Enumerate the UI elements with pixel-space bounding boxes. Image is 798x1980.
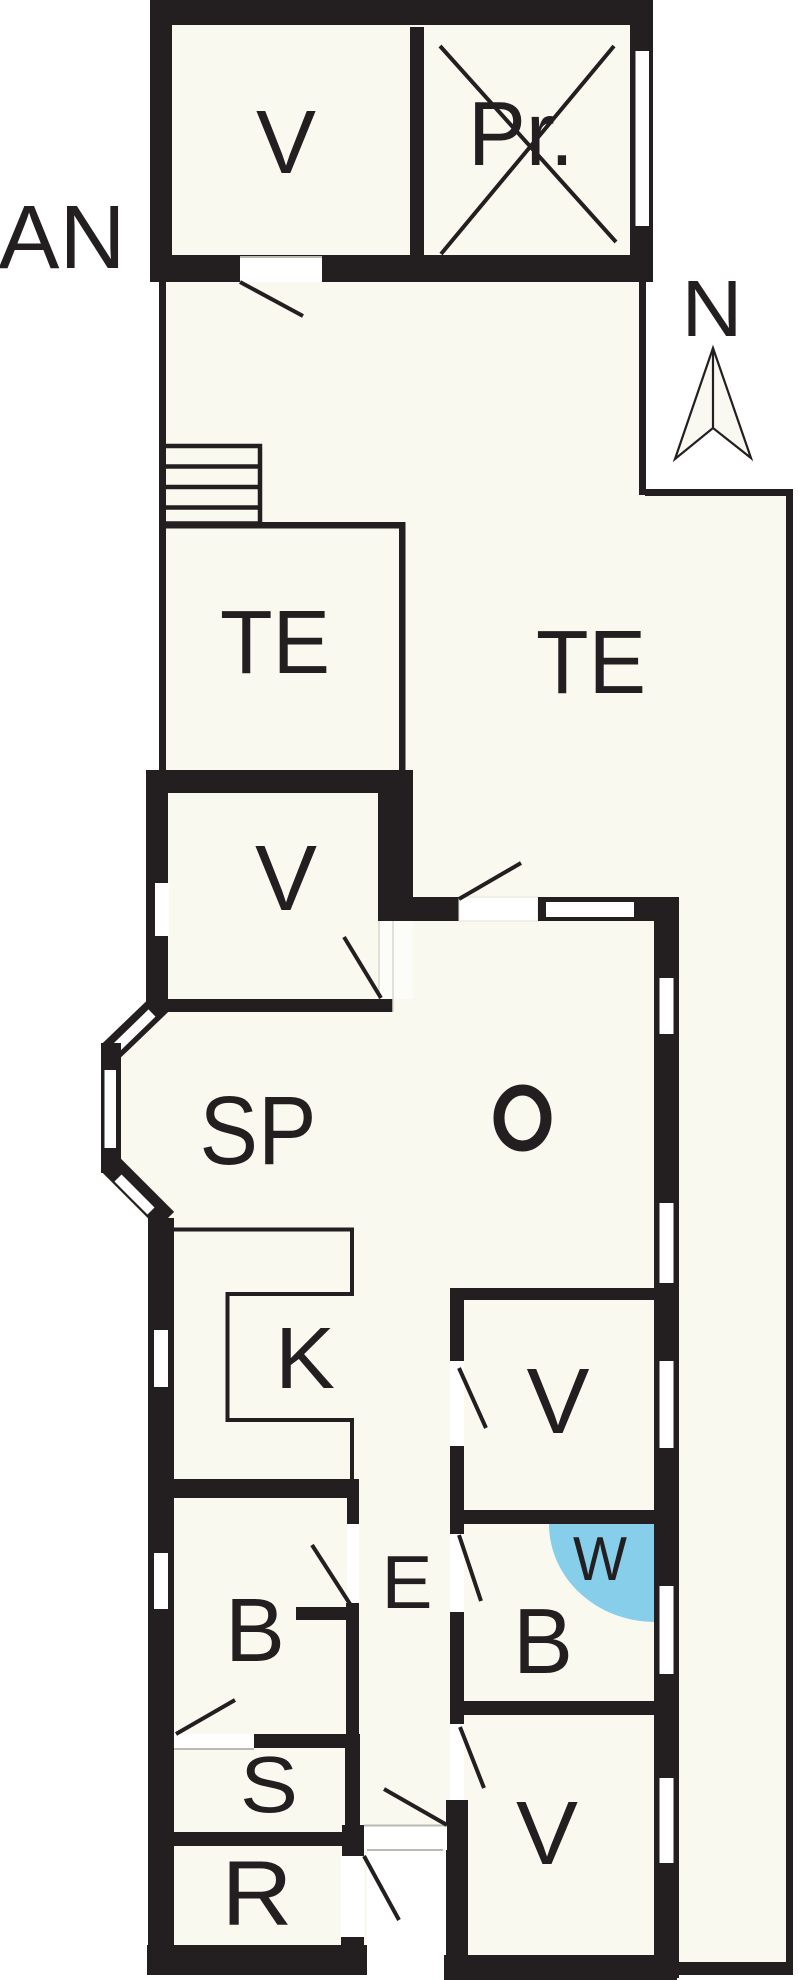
svg-text:B: B: [225, 1581, 285, 1681]
svg-text:W: W: [573, 1525, 627, 1594]
svg-text:K: K: [275, 1310, 335, 1407]
svg-text:R: R: [222, 1843, 293, 1945]
svg-text:V: V: [255, 826, 317, 930]
svg-text:Pr.: Pr.: [468, 84, 574, 185]
svg-text:AN: AN: [0, 188, 126, 288]
svg-text:SP: SP: [200, 1076, 317, 1185]
svg-text:E: E: [382, 1540, 433, 1624]
svg-text:TE: TE: [536, 613, 646, 713]
svg-text:N: N: [682, 264, 743, 353]
svg-text:B: B: [513, 1589, 573, 1693]
svg-text:S: S: [240, 1740, 298, 1829]
svg-text:V: V: [527, 1349, 590, 1453]
svg-text:V: V: [516, 1784, 578, 1884]
svg-text:TE: TE: [220, 593, 330, 693]
svg-text:V: V: [256, 93, 316, 193]
